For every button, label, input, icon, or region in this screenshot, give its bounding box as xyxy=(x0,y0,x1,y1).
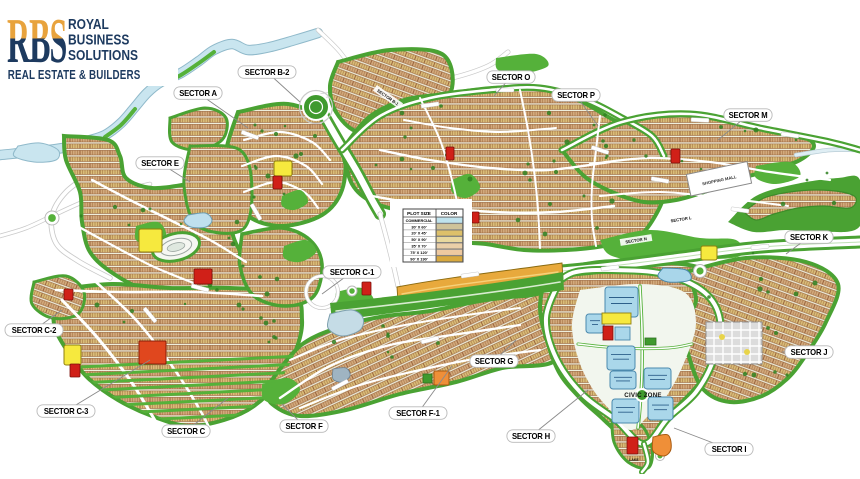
svg-text:RBS: RBS xyxy=(7,5,66,76)
svg-text:SECTOR B-2: SECTOR B-2 xyxy=(245,68,290,77)
svg-text:SECTOR H: SECTOR H xyxy=(512,432,550,441)
svg-text:20' X 45': 20' X 45' xyxy=(411,231,426,236)
svg-text:30' X 60': 30' X 60' xyxy=(411,224,426,229)
svg-text:75' X 120': 75' X 120' xyxy=(410,250,428,255)
svg-text:SECTOR F: SECTOR F xyxy=(285,422,322,431)
svg-text:SECTOR C-2: SECTOR C-2 xyxy=(12,326,57,335)
svg-text:SECTOR J: SECTOR J xyxy=(791,348,828,357)
svg-text:COMMERCIAL: COMMERCIAL xyxy=(406,218,433,223)
svg-text:90' X 190': 90' X 190' xyxy=(410,256,428,261)
svg-text:PLOT SIZE: PLOT SIZE xyxy=(407,211,431,216)
svg-text:35' X 70': 35' X 70' xyxy=(411,244,426,249)
svg-text:SECTOR C-1: SECTOR C-1 xyxy=(330,268,375,277)
svg-text:SECTOR M: SECTOR M xyxy=(729,111,768,120)
svg-text:SECTOR E: SECTOR E xyxy=(141,159,179,168)
svg-text:SECTOR C-3: SECTOR C-3 xyxy=(44,407,89,416)
svg-text:CIVIC ZONE: CIVIC ZONE xyxy=(624,392,661,399)
svg-text:50' X 90': 50' X 90' xyxy=(411,237,426,242)
svg-text:COLOR: COLOR xyxy=(441,211,458,216)
svg-text:SECTOR G: SECTOR G xyxy=(475,357,513,366)
svg-text:SECTOR P: SECTOR P xyxy=(557,91,595,100)
svg-text:SECTOR I: SECTOR I xyxy=(712,445,747,454)
svg-text:BUSINESS: BUSINESS xyxy=(68,31,129,48)
svg-text:SECTOR A: SECTOR A xyxy=(179,89,217,98)
svg-text:REAL ESTATE & BUILDERS: REAL ESTATE & BUILDERS xyxy=(8,69,141,82)
svg-text:ROYAL: ROYAL xyxy=(68,16,109,33)
svg-text:LAKE: LAKE xyxy=(629,458,639,462)
svg-text:SECTOR F-1: SECTOR F-1 xyxy=(396,409,440,418)
svg-text:SECTOR C: SECTOR C xyxy=(167,427,205,436)
svg-text:SOLUTIONS: SOLUTIONS xyxy=(68,47,138,64)
svg-text:SECTOR O: SECTOR O xyxy=(492,73,530,82)
svg-text:SECTOR K: SECTOR K xyxy=(790,233,828,242)
